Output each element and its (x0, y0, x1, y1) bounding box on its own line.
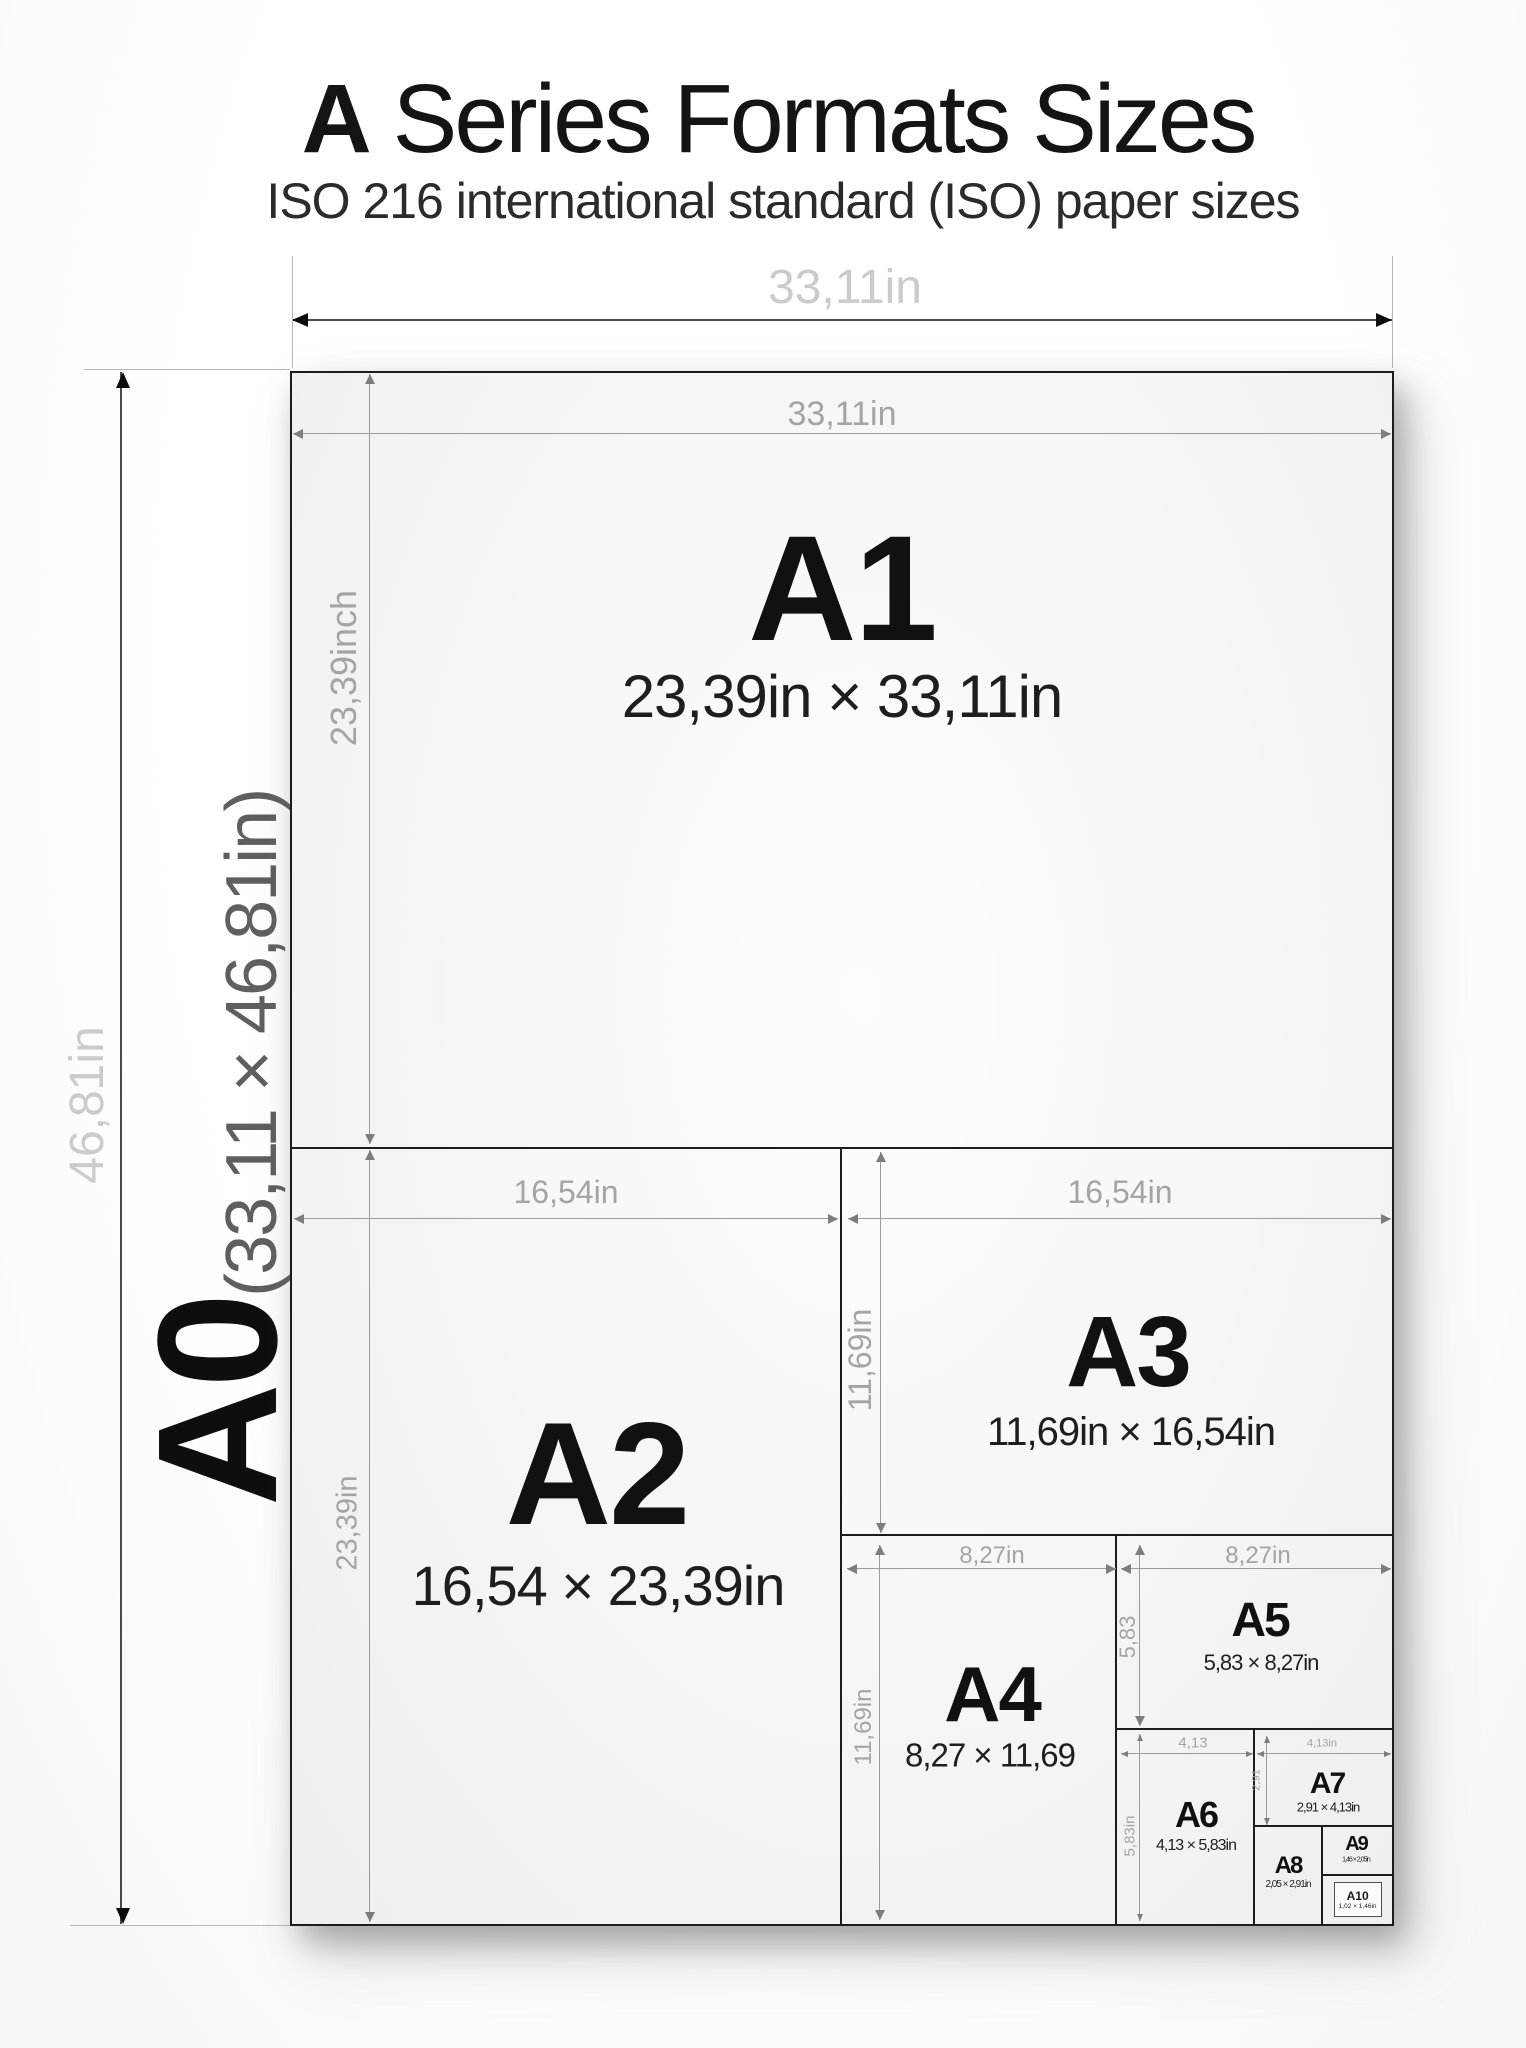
paper-sizes-infographic: A Series Formats Sizes ISO 216 internati… (0, 0, 1526, 2048)
a1-width-arrow (293, 433, 1391, 434)
a5-name: A5 (1231, 1597, 1288, 1645)
a4-width-arrow (847, 1568, 1116, 1569)
page-subtitle: ISO 216 international standard (ISO) pap… (0, 172, 1526, 230)
a2-width-arrow (294, 1218, 838, 1219)
a3-height-label: 11,69in (844, 1309, 876, 1412)
a2-height-label: 23,39in (334, 1475, 363, 1570)
a2-height-arrow (369, 1150, 370, 1922)
a5-width-arrow (1121, 1568, 1391, 1569)
region-a10: A10 1,02 × 1,46in (1323, 1876, 1392, 1924)
a6-height-arrow (1139, 1734, 1140, 1921)
extension-line (1392, 256, 1393, 368)
a4-width-label: 8,27in (959, 1544, 1024, 1568)
a0-label: A0(33,11 × 46,81in) (133, 790, 303, 1506)
a1-height-arrow (369, 374, 370, 1144)
a3-width-label: 16,54in (1068, 1176, 1173, 1208)
a6-dims: 4,13 × 5,83in (1156, 1838, 1236, 1854)
extension-line (84, 369, 290, 370)
a6-width-arrow (1121, 1753, 1253, 1754)
a2-width-label: 16,54in (514, 1176, 619, 1208)
a8-name: A8 (1275, 1854, 1302, 1878)
a7-name: A7 (1310, 1769, 1344, 1799)
a10-name: A10 (1347, 1890, 1369, 1902)
a7-width-arrow (1257, 1753, 1391, 1754)
a0-name: A0 (123, 1297, 313, 1506)
a4-height-arrow (879, 1545, 880, 1920)
a3-height-arrow (880, 1152, 881, 1533)
a1-width-label: 33,11in (787, 397, 896, 431)
a7-dims: 2,91 × 4,13in (1297, 1801, 1360, 1814)
a6-name: A6 (1175, 1797, 1217, 1833)
page-title: A Series Formats Sizes (0, 66, 1526, 173)
a3-width-arrow (848, 1218, 1391, 1219)
region-a1 (292, 373, 1392, 1149)
a1-height-label: 23,39inch (326, 590, 362, 746)
a3-name: A3 (1066, 1302, 1190, 1402)
a1-dims: 23,39in × 33,11in (622, 667, 1063, 727)
a9-name: A9 (1345, 1834, 1367, 1854)
a2-name: A2 (506, 1401, 689, 1547)
a7-width-label: 4,13in (1307, 1739, 1337, 1750)
extension-line (292, 256, 293, 368)
title-rest: Series Formats Sizes (369, 64, 1255, 173)
a7-height-arrow (1266, 1736, 1267, 1825)
title-bold-letter: A (302, 64, 369, 173)
a7-height-label: 2,91 (1252, 1769, 1263, 1790)
a9-dims: 1,46 × 2,05in (1342, 1857, 1370, 1864)
a6-height-label: 5,83in (1123, 1816, 1138, 1857)
a10-dims: 1,02 × 1,46in (1339, 1904, 1377, 1911)
outer-height-label: 46,81in (64, 1026, 112, 1183)
outer-height-arrow (120, 372, 122, 1924)
a4-dims: 8,27 × 11,69 (905, 1739, 1075, 1772)
a5-height-arrow (1139, 1545, 1140, 1726)
a0-dims: (33,11 × 46,81in) (212, 790, 292, 1297)
a1-name: A1 (748, 513, 936, 663)
a4-height-label: 11,69in (852, 1689, 876, 1766)
a6-width-label: 4,13 (1178, 1736, 1207, 1751)
a4-name: A4 (944, 1655, 1040, 1733)
a5-dims: 5,83 × 8,27in (1204, 1652, 1319, 1674)
a3-dims: 11,69in × 16,54in (987, 1412, 1275, 1452)
extension-line (70, 1925, 290, 1926)
outer-width-label: 33,11in (768, 264, 922, 312)
outer-width-arrow (292, 319, 1392, 321)
a10-outline: A10 1,02 × 1,46in (1334, 1882, 1382, 1917)
a8-dims: 2,05 × 2,91in (1265, 1880, 1310, 1890)
a5-width-label: 8,27in (1225, 1544, 1290, 1568)
a5-height-label: 5,83 (1117, 1616, 1139, 1659)
a2-dims: 16,54 × 23,39in (412, 1558, 785, 1614)
